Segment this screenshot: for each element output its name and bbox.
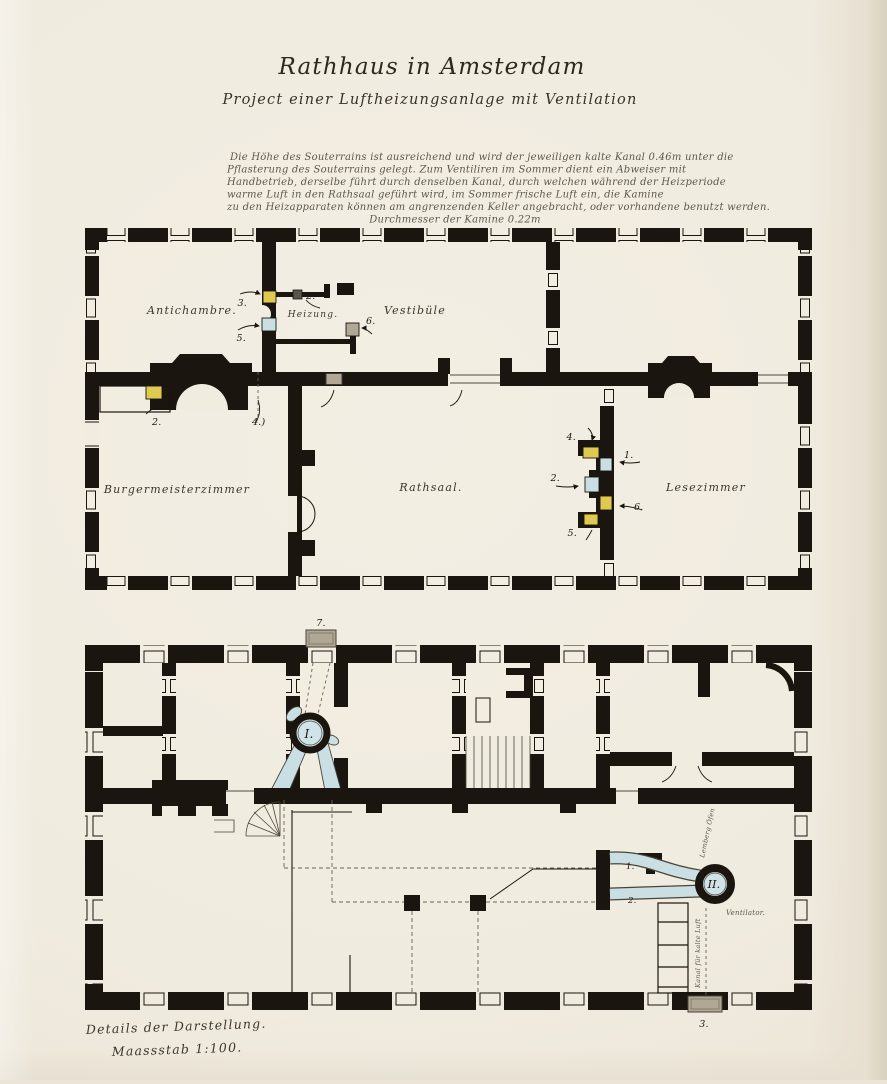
rathsaal-heater-wall: 4. 1. 2. 6. 5.	[550, 386, 644, 576]
description-line: warme Luft in den Rathsaal geführt wird,…	[227, 190, 664, 201]
warm-air-box	[146, 386, 162, 399]
warm-air-box	[263, 291, 276, 303]
cold-air-box	[262, 318, 276, 331]
marker-saal-1: 1.	[624, 450, 633, 461]
room-label-rathsaal: Rathsaal.	[398, 481, 462, 494]
footer-line2: Maassstab 1:100.	[111, 1039, 243, 1059]
flue-box	[346, 323, 359, 336]
page-title: Rathhaus in Amsterdam	[277, 54, 585, 80]
duct-2-label: 2.	[627, 896, 637, 906]
kamin-buergermeisterzimmer: 2. 4.)	[100, 354, 265, 428]
title-block: Rathhaus in Amsterdam Project einer Luft…	[222, 54, 638, 108]
paper-sheet: Rathhaus in Amsterdam Project einer Luft…	[0, 0, 887, 1080]
annotation-ventilator: Ventilator.	[726, 909, 765, 917]
floor-plan-drawing: Rathhaus in Amsterdam Project einer Luft…	[0, 0, 887, 1080]
room-label-buergermeisterzimmer: Burgermeisterzimmer	[103, 483, 250, 496]
description-line: Durchmesser der Kamine 0.22m	[368, 215, 541, 226]
flue-box-mid-wall	[326, 374, 342, 385]
underfloor-channels	[284, 800, 596, 992]
room-label-heizung: Heizung.	[287, 310, 339, 320]
annotation-oven: Lemberg Öfen	[697, 807, 716, 859]
marker-saal-5: 5.	[568, 528, 577, 539]
lower-floor-plan: 7.	[85, 618, 812, 1030]
marker-saal-6: 6.	[634, 502, 643, 513]
duct-1-label: 1.	[626, 862, 635, 872]
marker-saal-2: 2.	[550, 473, 560, 484]
warm-air-box	[600, 496, 612, 510]
straight-staircase	[466, 736, 530, 790]
marker-saal-4: 4.	[566, 432, 576, 443]
upper-wall-left-lower	[288, 386, 315, 576]
marker-kamin-2: 2.	[151, 417, 161, 428]
room-label-lesezimmer: Lesezimmer	[665, 481, 746, 494]
furnace-i-label: I.	[304, 727, 314, 741]
description-line: Die Höhe des Souterrains ist ausreichend…	[229, 152, 734, 163]
kamin-right-room	[648, 356, 712, 398]
marker-heiz-5: 5.	[237, 333, 246, 344]
page-subtitle: Project einer Luftheizungsanlage mit Ven…	[222, 92, 638, 108]
footer-notes: Details der Darstellung. Maassstab 1:100…	[85, 1016, 267, 1059]
outlet-bottom	[688, 996, 722, 1012]
room-label-vestibule: Vestibüle	[384, 304, 446, 317]
flue-box	[293, 290, 302, 299]
lower-mid-wall	[103, 780, 794, 816]
description-paragraph: Die Höhe des Souterrains ist ausreichend…	[226, 152, 770, 226]
cold-air-box	[600, 458, 612, 471]
upper-wall-vestibule-right	[546, 242, 560, 372]
outlet-top: 7.	[305, 618, 336, 714]
marker-kamin-4: 4.)	[251, 417, 265, 428]
marker-heiz-3: 3.	[238, 298, 247, 309]
heizung-apparatus: 3. 2. 5. 6.	[237, 242, 376, 420]
description-line: zu den Heizapparaten können am angrenzen…	[226, 202, 770, 213]
upper-floor-plan: 2. 4.) 3. 2. 5.	[85, 228, 812, 590]
description-line: Pflasterung des Souterrains gelegt. Zum …	[226, 165, 687, 176]
marker-outlet-3: 3.	[699, 1019, 708, 1030]
room-label-antichambre: Antichambre.	[146, 304, 237, 317]
footer-line1: Details der Darstellung.	[85, 1016, 267, 1037]
warm-air-box	[584, 514, 598, 525]
ladder-shaft	[658, 903, 688, 993]
furnace-i: I.	[270, 704, 341, 798]
marker-heiz-2: 2.	[305, 291, 315, 302]
marker-outlet-7: 7.	[316, 618, 325, 629]
warm-air-box	[583, 447, 599, 458]
cold-air-box	[585, 477, 599, 492]
furnace-ii-label: II.	[707, 878, 721, 891]
marker-heiz-6: 6.	[366, 316, 375, 327]
description-line: Handbetrieb, derselbe führt durch densel…	[226, 177, 726, 188]
annotation-channel: Kanal für kalte Luft	[694, 918, 702, 989]
